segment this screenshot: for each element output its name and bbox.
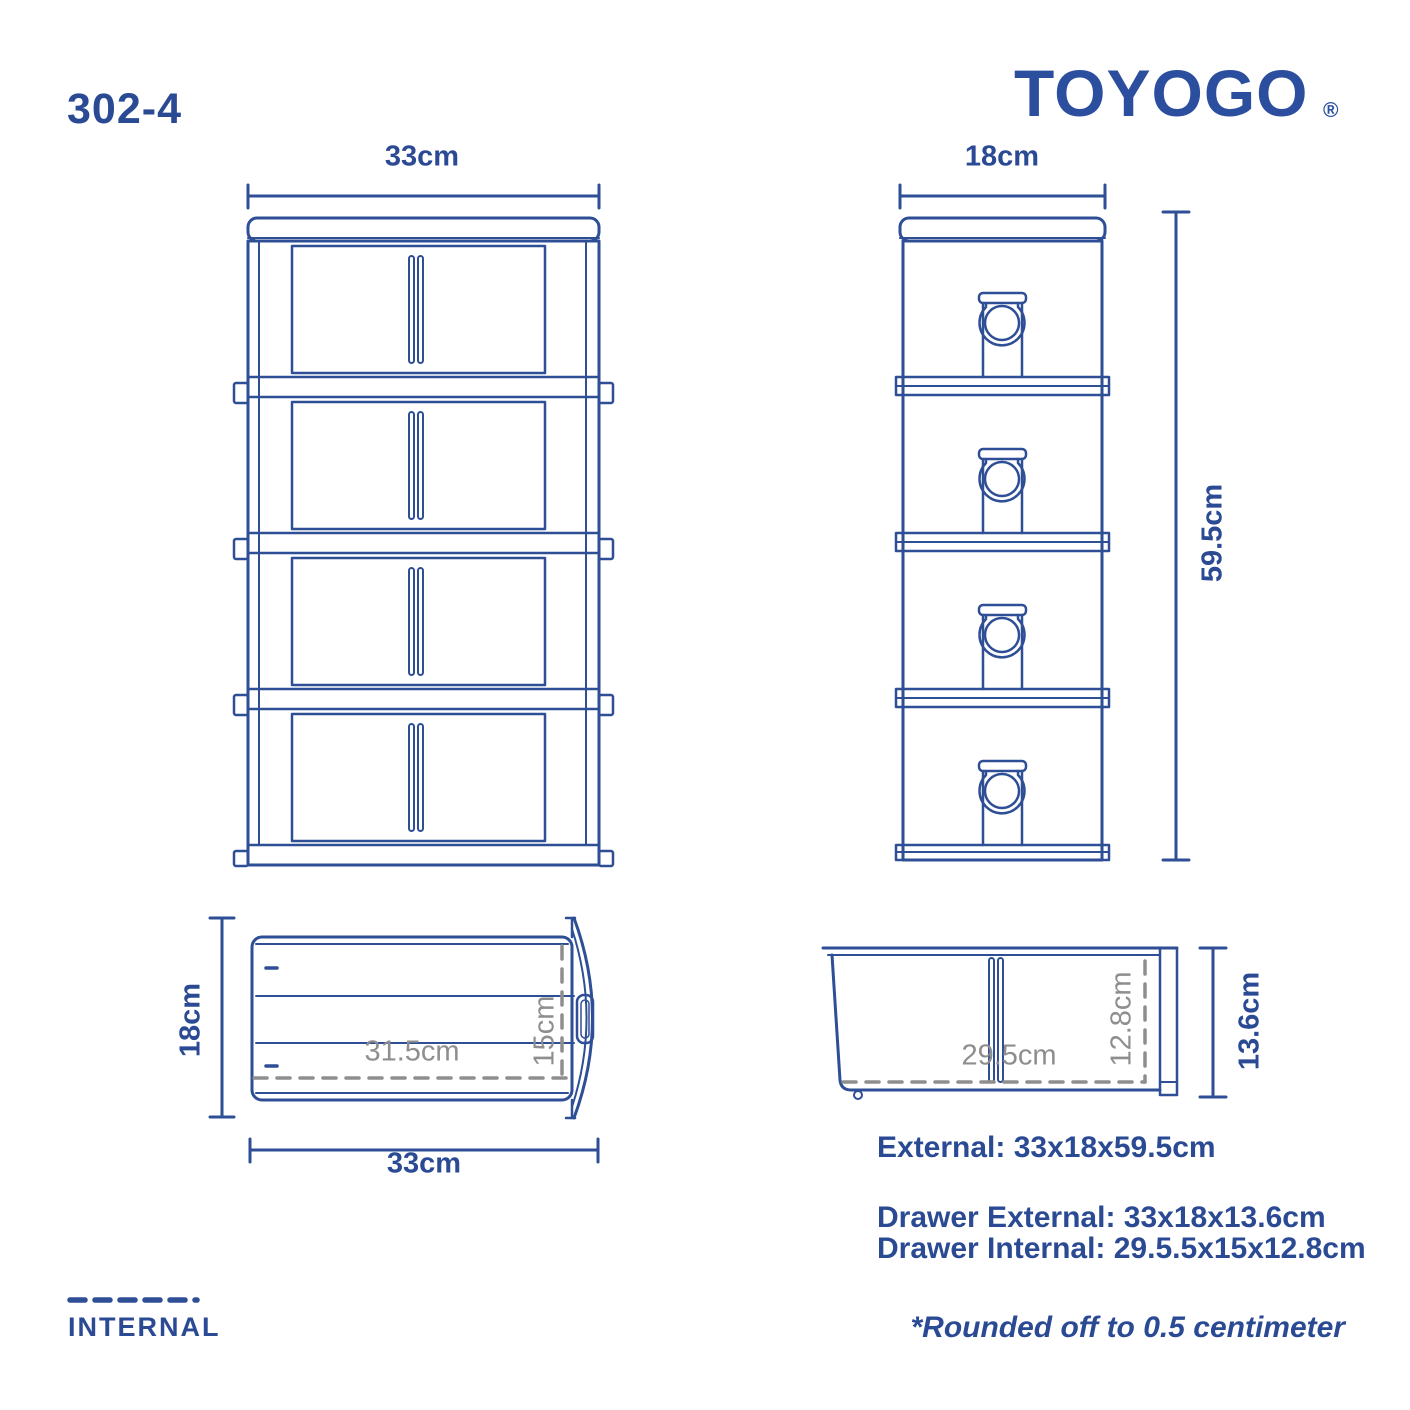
- top-view-internal-depth-label: 15cm: [531, 996, 560, 1067]
- drawer-internal-height-label: 12.8cm: [1108, 971, 1137, 1066]
- side-height-dim: [1163, 212, 1189, 860]
- top-view-width-label: 33cm: [387, 1150, 461, 1179]
- drawer-internal-width-label: 29.5cm: [961, 1042, 1056, 1071]
- front-width-label: 33cm: [385, 143, 459, 172]
- top-view-internal-width-label: 31.5cm: [364, 1038, 459, 1067]
- front-width-dim: [248, 185, 599, 208]
- drawer-clip-handle-icon: [979, 293, 1026, 377]
- front-view-drawing: [234, 218, 613, 866]
- side-width-label: 18cm: [965, 143, 1039, 172]
- diagram-canvas: [0, 0, 1410, 1410]
- side-height-label: 59.5cm: [1199, 484, 1228, 582]
- spec-drawer-external: Drawer External: 33x18x13.6cm: [877, 1203, 1326, 1233]
- side-width-dim: [900, 185, 1105, 208]
- spec-external: External: 33x18x59.5cm: [877, 1133, 1216, 1163]
- top-view-depth-label: 18cm: [177, 983, 206, 1057]
- side-view-drawing: [896, 218, 1109, 860]
- drawer-height-dim: [1200, 948, 1226, 1097]
- brand-logo: TOYOGO: [1014, 60, 1309, 126]
- model-number: 302-4: [67, 88, 182, 131]
- top-view-depth-dim: [210, 918, 234, 1117]
- spec-sheet: { "header": { "model": "302-4", "brand":…: [0, 0, 1410, 1410]
- rounding-footnote: *Rounded off to 0.5 centimeter: [860, 1311, 1345, 1345]
- drawer-clip-handle-icon: [979, 605, 1026, 689]
- spec-drawer-internal: Drawer Internal: 29.5.5x15x12.8cm: [877, 1234, 1366, 1264]
- registered-trademark-icon: ®: [1323, 100, 1338, 121]
- drawer-clip-handle-icon: [979, 761, 1026, 845]
- drawer-external-height-label: 13.6cm: [1236, 972, 1265, 1070]
- internal-legend-label: INTERNAL: [68, 1312, 221, 1343]
- drawer-clip-handle-icon: [979, 449, 1026, 533]
